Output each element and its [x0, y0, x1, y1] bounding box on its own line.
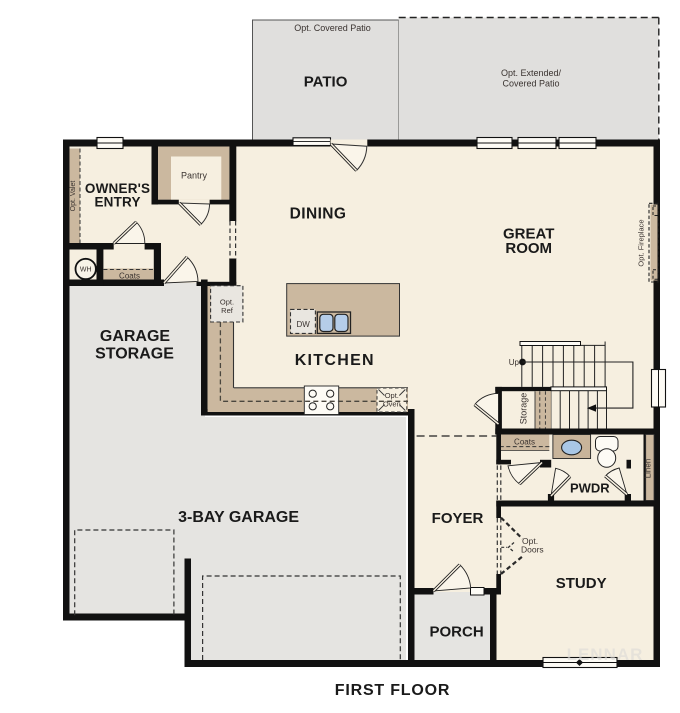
svg-text:PORCH: PORCH [430, 624, 484, 641]
svg-text:Ref: Ref [221, 306, 234, 315]
svg-text:3-BAY GARAGE: 3-BAY GARAGE [178, 509, 299, 526]
svg-text:ENTRY: ENTRY [94, 195, 140, 210]
svg-text:PATIO: PATIO [304, 74, 348, 91]
svg-text:Doors: Doors [521, 545, 544, 555]
svg-text:Coats: Coats [514, 438, 535, 447]
svg-text:Opt. Fireplace: Opt. Fireplace [637, 219, 646, 266]
svg-text:Opt. Valet: Opt. Valet [70, 181, 77, 212]
svg-text:ROOM: ROOM [505, 240, 552, 257]
svg-text:STUDY: STUDY [556, 575, 607, 592]
svg-text:Coats: Coats [119, 272, 140, 281]
svg-text:Covered Patio: Covered Patio [502, 79, 559, 89]
svg-text:Up: Up [509, 358, 520, 367]
svg-text:LENNAR: LENNAR [567, 645, 644, 664]
svg-text:STORAGE: STORAGE [95, 346, 174, 363]
svg-text:FOYER: FOYER [432, 510, 484, 527]
svg-text:Storage: Storage [519, 393, 529, 425]
svg-text:DINING: DINING [290, 206, 347, 223]
svg-text:DW: DW [297, 320, 311, 329]
svg-text:Linen: Linen [643, 459, 652, 479]
svg-text:WH: WH [80, 267, 92, 274]
svg-text:Opt. Extended/: Opt. Extended/ [501, 68, 562, 78]
svg-text:FIRST FLOOR: FIRST FLOOR [335, 682, 450, 699]
svg-text:GARAGE: GARAGE [100, 328, 171, 345]
svg-text:Opt. Covered Patio: Opt. Covered Patio [294, 23, 371, 33]
svg-text:KITCHEN: KITCHEN [295, 352, 375, 369]
svg-text:Pantry: Pantry [181, 171, 208, 181]
svg-text:PWDR: PWDR [570, 481, 610, 496]
